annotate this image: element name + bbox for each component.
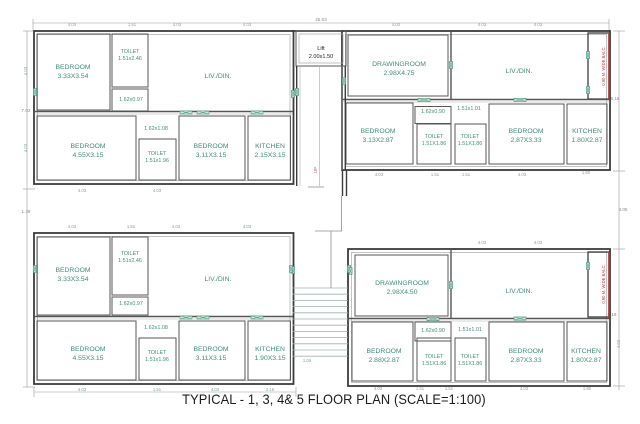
svg-text:2.87X3.33: 2.87X3.33 [511,137,542,144]
svg-text:4.03: 4.03 [173,22,182,27]
svg-text:2.88X2.87: 2.88X2.87 [369,357,400,364]
svg-text:BEDROOM: BEDROOM [360,128,395,135]
svg-text:1.51X1.86: 1.51X1.86 [458,141,483,147]
svg-text:TOILET: TOILET [461,354,480,360]
svg-text:Lift: Lift [317,46,325,52]
svg-text:4.55X3.15: 4.55X3.15 [73,355,104,362]
svg-text:1.90X3.15: 1.90X3.15 [255,355,286,362]
svg-text:1.51: 1.51 [127,224,136,229]
svg-text:4.03: 4.03 [375,172,384,177]
svg-text:BEDROOM: BEDROOM [193,346,228,353]
svg-text:8.18: 8.18 [611,96,620,101]
svg-text:1.62x0.90: 1.62x0.90 [421,109,445,115]
svg-text:4.03: 4.03 [68,22,77,27]
svg-text:1.51x1.01: 1.51x1.01 [457,106,481,112]
svg-text:TOILET: TOILET [148,151,167,157]
svg-text:1.62x0.97: 1.62x0.97 [119,301,143,307]
svg-text:TOILET: TOILET [148,350,167,356]
svg-text:1.80X2.87: 1.80X2.87 [572,137,603,144]
svg-text:2.00x1.50: 2.00x1.50 [309,54,334,60]
svg-text:4.03: 4.03 [534,22,543,27]
svg-text:TOILET: TOILET [461,134,480,140]
svg-text:3.11X3.15: 3.11X3.15 [196,152,227,159]
svg-text:4.03: 4.03 [23,143,28,152]
svg-text:3.11X3.15: 3.11X3.15 [196,355,227,362]
svg-text:LIV./DIN.: LIV./DIN. [205,73,232,80]
svg-text:4.03: 4.03 [616,339,621,348]
svg-text:4.03: 4.03 [78,188,87,193]
svg-text:4.03: 4.03 [392,22,401,27]
svg-text:4.03: 4.03 [478,240,487,245]
svg-text:3.13X2.87: 3.13X2.87 [363,137,394,144]
svg-text:BEDROOM: BEDROOM [193,143,228,150]
svg-text:4.03: 4.03 [534,240,543,245]
svg-text:DRAWINGROOM: DRAWINGROOM [375,280,429,287]
svg-text:1.51x1.96: 1.51x1.96 [145,158,169,164]
svg-text:3.33X3.54: 3.33X3.54 [58,73,89,80]
svg-text:2.98X4.75: 2.98X4.75 [384,70,415,77]
svg-text:1.06: 1.06 [303,358,312,363]
svg-text:KITCHEN: KITCHEN [255,346,285,353]
svg-text:KITCHEN: KITCHEN [255,143,285,150]
svg-text:4.03: 4.03 [172,224,181,229]
svg-text:TOILET: TOILET [121,251,140,257]
svg-text:1.62x0.90: 1.62x0.90 [421,328,445,334]
svg-text:BEDROOM: BEDROOM [508,128,543,135]
svg-text:4.03: 4.03 [23,66,28,75]
svg-text:LIV./DIN.: LIV./DIN. [205,276,232,283]
svg-text:BEDROOM: BEDROOM [55,64,90,71]
svg-text:TOILET: TOILET [425,354,444,360]
svg-text:1.80X2.87: 1.80X2.87 [571,357,602,364]
svg-text:1.51x2.46: 1.51x2.46 [118,258,142,264]
svg-text:2.87X3.33: 2.87X3.33 [511,357,542,364]
svg-text:1.51X1.86: 1.51X1.86 [458,361,483,367]
svg-text:7.03: 7.03 [22,108,31,113]
svg-text:BEDROOM: BEDROOM [508,348,543,355]
svg-text:4.03: 4.03 [518,172,527,177]
svg-text:4.03: 4.03 [243,22,252,27]
svg-text:3.33X3.54: 3.33X3.54 [58,276,89,283]
svg-text:KITCHEN: KITCHEN [571,348,601,355]
svg-text:1.80: 1.80 [582,170,591,175]
svg-text:LIV./DIN.: LIV./DIN. [506,288,533,295]
svg-text:TOILET: TOILET [121,49,140,55]
svg-text:1.51X1.86: 1.51X1.86 [422,361,447,367]
svg-text:1.51: 1.51 [462,172,471,177]
svg-text:0.90 M. WIDE BALC.: 0.90 M. WIDE BALC. [601,46,606,85]
svg-text:TOILET: TOILET [425,134,444,140]
svg-text:1.62x1.08: 1.62x1.08 [144,126,168,132]
svg-text:0.90 M. WIDE BALC.: 0.90 M. WIDE BALC. [601,264,606,303]
svg-text:DRAWINGROOM: DRAWINGROOM [372,61,426,68]
svg-text:BEDROOM: BEDROOM [366,348,401,355]
svg-text:1.38: 1.38 [22,209,31,214]
svg-text:1.62x0.97: 1.62x0.97 [119,97,143,103]
svg-text:BEDROOM: BEDROOM [55,267,90,274]
svg-text:1.51x1.96: 1.51x1.96 [145,357,169,363]
svg-text:BEDROOM: BEDROOM [70,143,105,150]
svg-text:BEDROOM: BEDROOM [70,346,105,353]
svg-text:4.55X3.15: 4.55X3.15 [73,152,104,159]
svg-text:1.51: 1.51 [431,172,440,177]
svg-text:1.62x1.08: 1.62x1.08 [144,325,168,331]
svg-text:2.98X4.50: 2.98X4.50 [387,289,418,296]
svg-text:UP: UP [313,167,318,173]
svg-text:4.03: 4.03 [243,224,252,229]
svg-text:KITCHEN: KITCHEN [572,128,602,135]
svg-text:4.03: 4.03 [68,224,77,229]
svg-text:1.51X1.86: 1.51X1.86 [422,141,447,147]
svg-text:1.51: 1.51 [128,22,137,27]
svg-text:25.03: 25.03 [315,17,327,22]
svg-text:1.51x2.46: 1.51x2.46 [118,56,142,62]
svg-text:3.05: 3.05 [619,207,628,212]
svg-text:1.51x1.01: 1.51x1.01 [458,327,482,333]
svg-text:4.03: 4.03 [153,188,162,193]
svg-text:LIV./DIN.: LIV./DIN. [506,68,533,75]
svg-text:4.03: 4.03 [478,22,487,27]
svg-text:2.15X3.15: 2.15X3.15 [255,152,286,159]
